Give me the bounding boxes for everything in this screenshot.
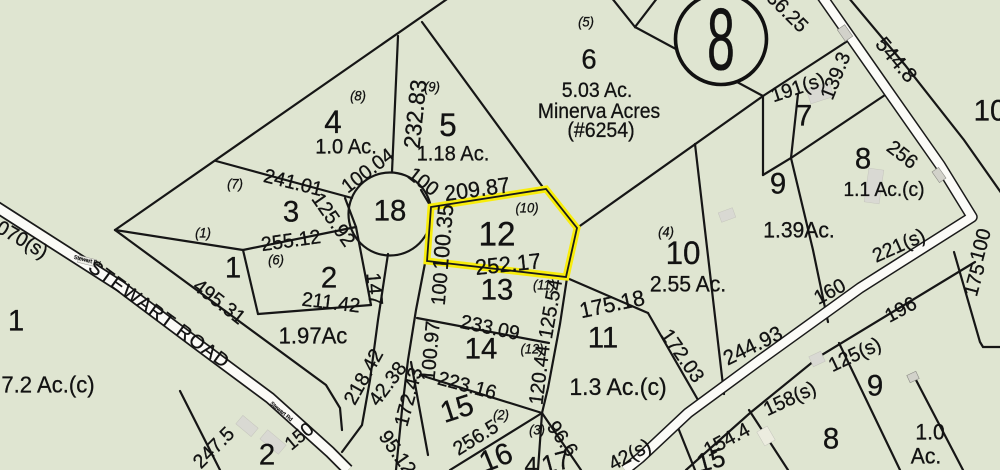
svg-text:5: 5	[439, 107, 456, 143]
svg-text:1.0: 1.0	[915, 419, 944, 445]
svg-text:8: 8	[855, 142, 871, 175]
svg-text:1.97Ac: 1.97Ac	[279, 323, 348, 349]
svg-text:9: 9	[867, 369, 883, 402]
svg-text:(4): (4)	[658, 224, 674, 239]
svg-text:2: 2	[321, 261, 337, 294]
svg-text:12: 12	[478, 216, 515, 253]
svg-text:100: 100	[428, 272, 453, 307]
svg-text:(10): (10)	[515, 200, 538, 215]
svg-text:(#6254): (#6254)	[567, 120, 634, 143]
svg-text:2.55 Ac.: 2.55 Ac.	[650, 271, 726, 297]
svg-text:1.18 Ac.: 1.18 Ac.	[417, 142, 490, 165]
svg-text:18: 18	[374, 194, 407, 227]
svg-text:6: 6	[581, 43, 596, 74]
svg-text:2: 2	[259, 438, 275, 470]
svg-text:7: 7	[796, 99, 812, 132]
svg-text:8: 8	[823, 422, 839, 455]
svg-text:Ac.: Ac.	[911, 443, 941, 469]
svg-text:3: 3	[283, 195, 299, 228]
svg-text:11: 11	[588, 321, 619, 354]
svg-text:1.39Ac.: 1.39Ac.	[763, 217, 835, 243]
svg-text:5.03 Ac.: 5.03 Ac.	[562, 80, 633, 103]
svg-text:(1): (1)	[195, 225, 211, 240]
svg-text:7.2 Ac.(c): 7.2 Ac.(c)	[1, 372, 94, 398]
svg-text:9: 9	[770, 167, 786, 200]
svg-text:147: 147	[362, 272, 387, 307]
svg-text:(8): (8)	[350, 88, 366, 103]
svg-text:(5): (5)	[578, 14, 594, 29]
svg-text:8: 8	[707, 0, 735, 89]
svg-text:1.1 Ac.(c): 1.1 Ac.(c)	[843, 179, 924, 201]
svg-text:1: 1	[225, 251, 241, 284]
svg-text:(2): (2)	[493, 407, 509, 422]
svg-text:4: 4	[524, 452, 537, 470]
svg-text:1.0 Ac.: 1.0 Ac.	[315, 135, 377, 158]
svg-text:1.3 Ac.(c): 1.3 Ac.(c)	[569, 374, 666, 401]
svg-text:10: 10	[974, 94, 1000, 127]
svg-text:1: 1	[8, 304, 24, 337]
svg-text:10: 10	[666, 235, 701, 271]
svg-text:(7): (7)	[227, 176, 243, 191]
